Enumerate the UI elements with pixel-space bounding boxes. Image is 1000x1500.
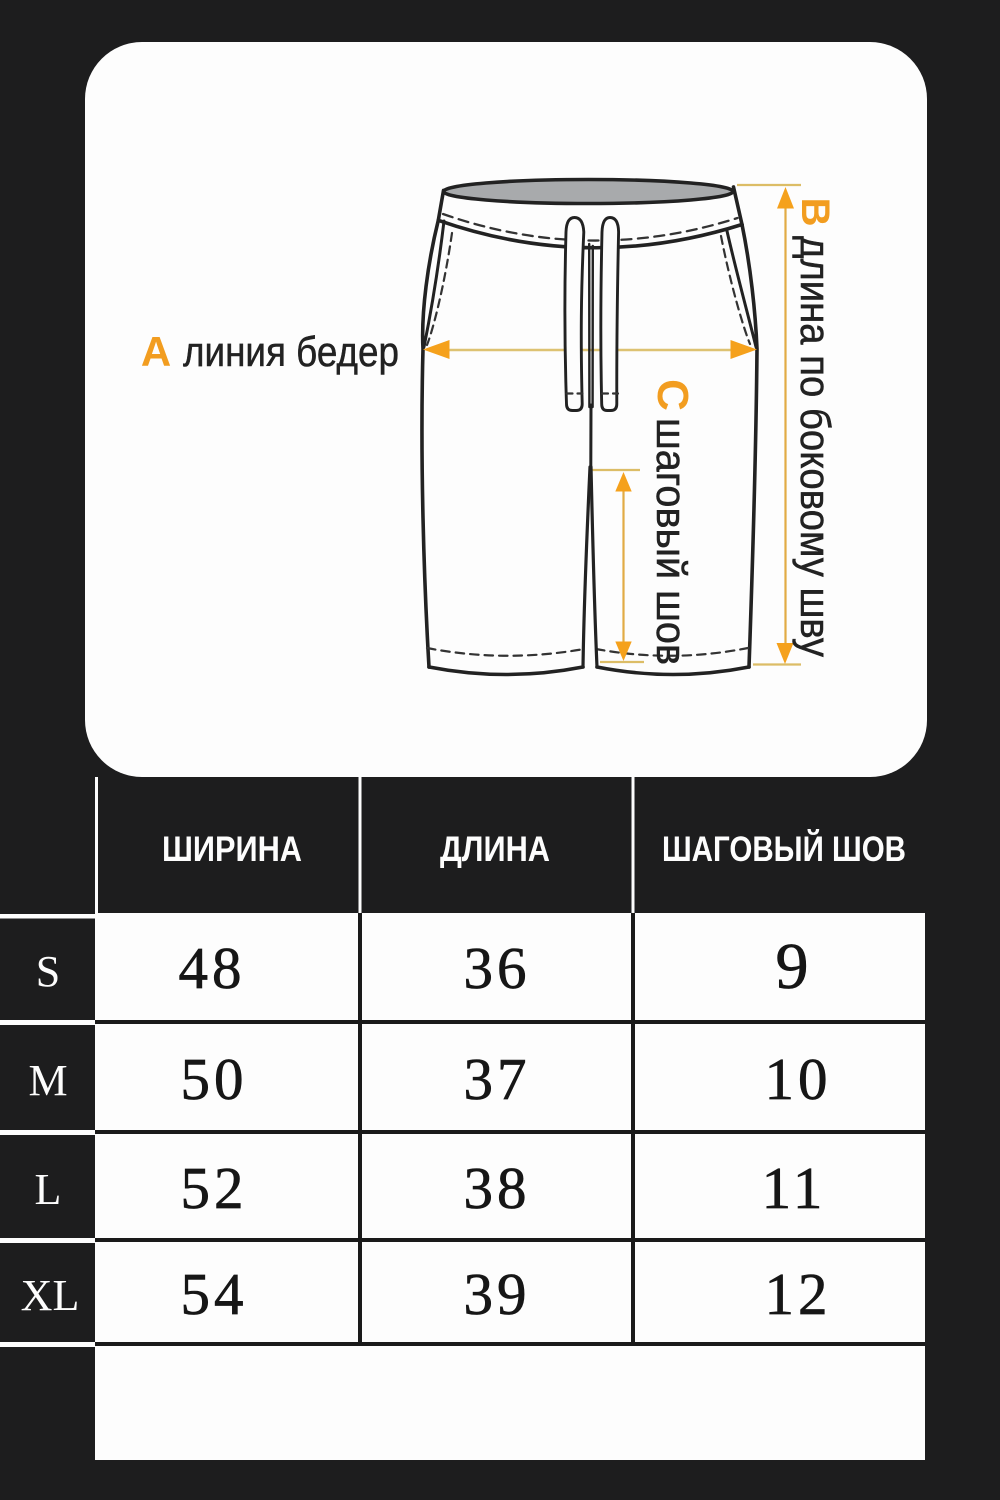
svg-text:L: L [35,1165,62,1214]
svg-text:50: 50 [181,1046,248,1112]
svg-text:ДЛИНА: ДЛИНА [440,830,550,869]
svg-text:линия бедер: линия бедер [183,328,399,375]
svg-text:48: 48 [179,935,246,1001]
svg-text:S: S [36,947,60,996]
svg-text:А: А [141,328,171,375]
svg-text:шаговый шов: шаговый шов [648,418,695,665]
svg-text:XL: XL [21,1271,80,1320]
svg-text:37: 37 [464,1046,531,1112]
svg-text:В: В [793,198,837,227]
svg-text:36: 36 [464,935,531,1001]
svg-text:39: 39 [464,1261,531,1327]
svg-text:38: 38 [464,1155,531,1221]
svg-text:С: С [648,379,697,411]
svg-text:длина по боковому шву: длина по боковому шву [792,236,839,657]
svg-text:12: 12 [765,1261,832,1327]
svg-text:54: 54 [181,1261,248,1327]
svg-text:ШАГОВЫЙ ШОВ: ШАГОВЫЙ ШОВ [662,829,906,869]
svg-text:9: 9 [776,930,809,1003]
svg-text:52: 52 [181,1155,248,1221]
svg-text:10: 10 [765,1046,832,1112]
svg-text:M: M [28,1056,67,1105]
svg-text:ШИРИНА: ШИРИНА [162,830,302,869]
svg-text:11: 11 [762,1155,827,1221]
